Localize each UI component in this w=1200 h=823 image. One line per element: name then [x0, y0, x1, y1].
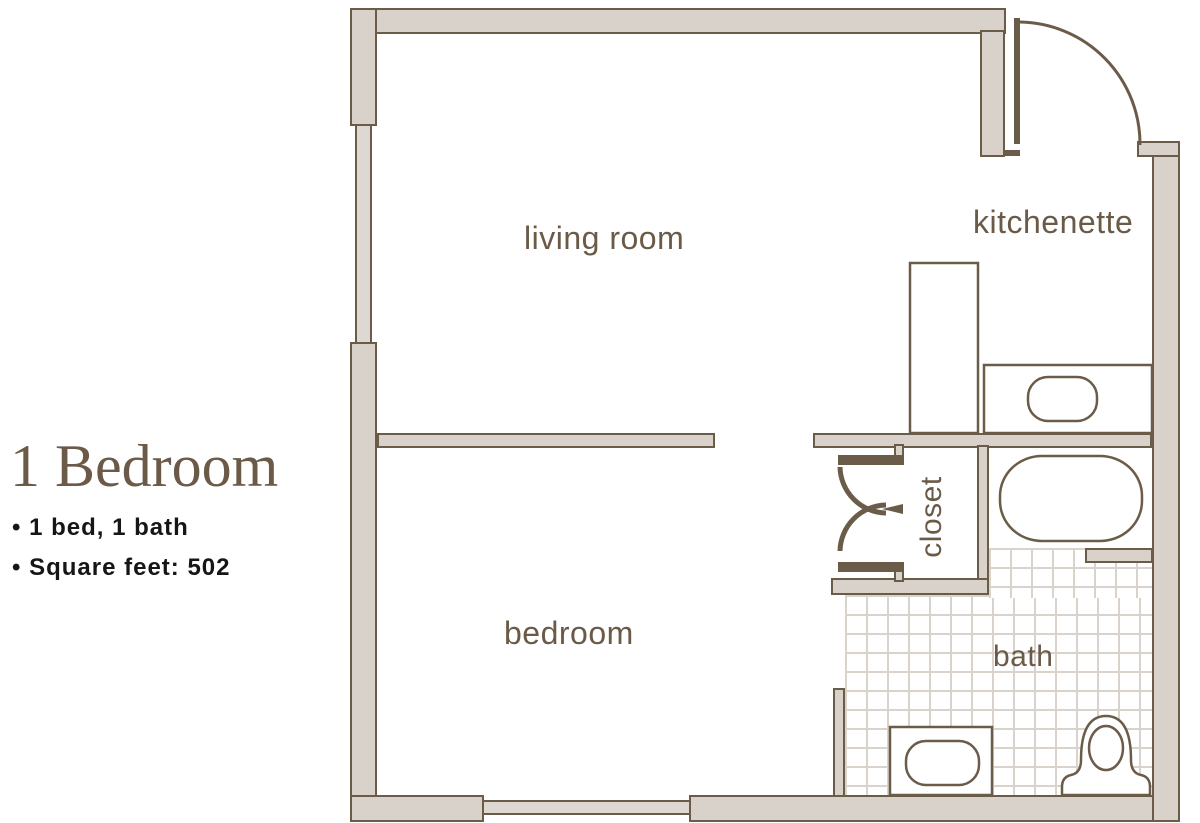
kitchen-cabinet: [910, 263, 978, 433]
closet-door-meet-tick: [882, 504, 903, 514]
wall-entry-foot: [1004, 150, 1020, 156]
entry-door-arc: [1020, 22, 1140, 145]
wall-right: [1152, 141, 1180, 822]
wall-entry-vestibule: [980, 30, 1005, 157]
wall-bottom-right: [689, 795, 1180, 822]
wall-interior-left-segment: [377, 433, 715, 448]
closet-door-leaf-top: [838, 455, 904, 465]
bathtub: [1000, 456, 1142, 541]
wall-top: [350, 8, 1006, 34]
entry-door-leaf: [1014, 18, 1020, 144]
plan-title: 1 Bedroom: [10, 432, 278, 501]
room-label-bedroom: bedroom: [504, 615, 634, 652]
closet-door-arc-top: [840, 467, 886, 513]
room-label-closet: closet: [915, 476, 949, 557]
floor-plan-page: living room kitchenette closet bedroom b…: [0, 0, 1200, 823]
room-label-kitchenette: kitchenette: [973, 204, 1133, 241]
kitchen-counter: [984, 365, 1152, 433]
closet-door-arc-bottom: [840, 505, 886, 551]
wall-closet-bottom: [831, 578, 989, 595]
window-bottom: [482, 800, 691, 815]
room-label-bath: bath: [993, 640, 1053, 674]
wall-tub-stub: [1085, 548, 1153, 563]
wall-closet-right: [977, 445, 989, 595]
plan-detail-beds-baths: • 1 bed, 1 bath: [12, 514, 189, 542]
wall-left-upper: [350, 8, 377, 126]
wall-bottom-left: [350, 795, 484, 822]
wall-bath-left-stub: [833, 688, 845, 797]
wall-right-top-cap: [1137, 141, 1180, 157]
plan-detail-square-feet: • Square feet: 502: [12, 554, 230, 582]
bath-tile-floor: [845, 595, 1153, 796]
window-left: [355, 124, 372, 344]
closet-door-leaf-bottom: [838, 562, 904, 572]
kitchen-sink: [1028, 377, 1097, 421]
room-label-living-room: living room: [524, 220, 684, 257]
wall-left-lower: [350, 342, 377, 797]
